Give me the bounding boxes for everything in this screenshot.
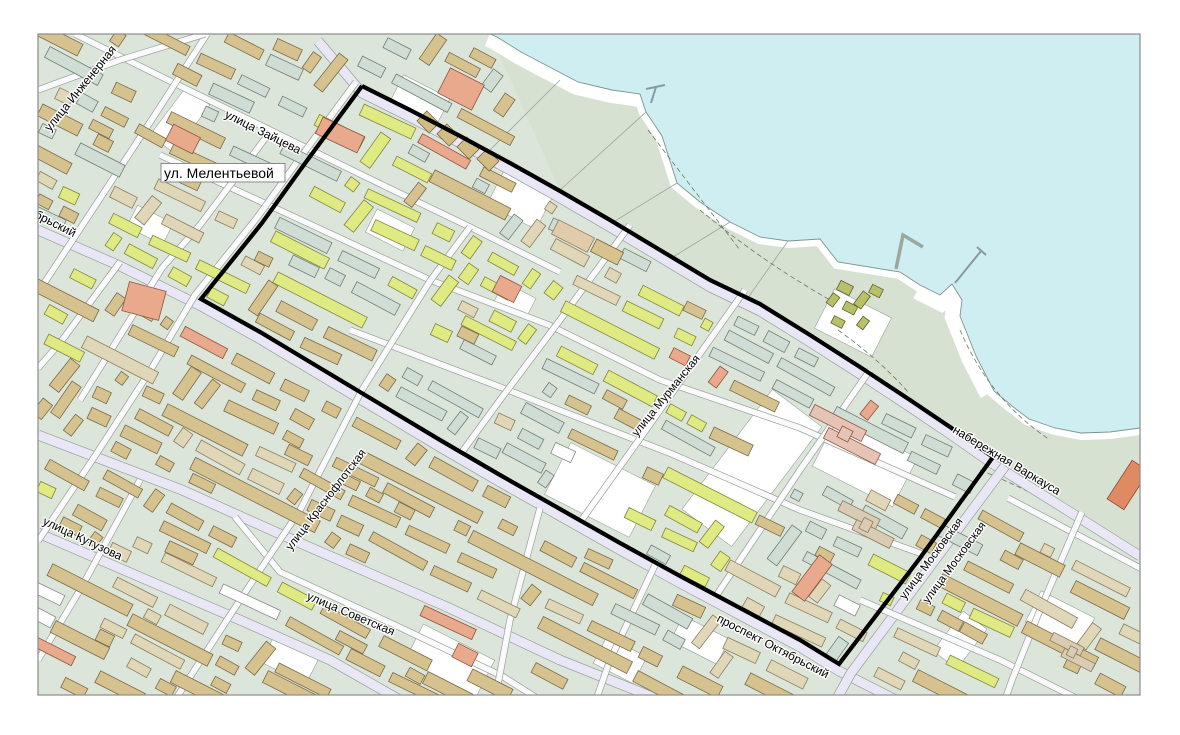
svg-text:ул. Мелентьевой: ул. Мелентьевой xyxy=(164,165,274,181)
